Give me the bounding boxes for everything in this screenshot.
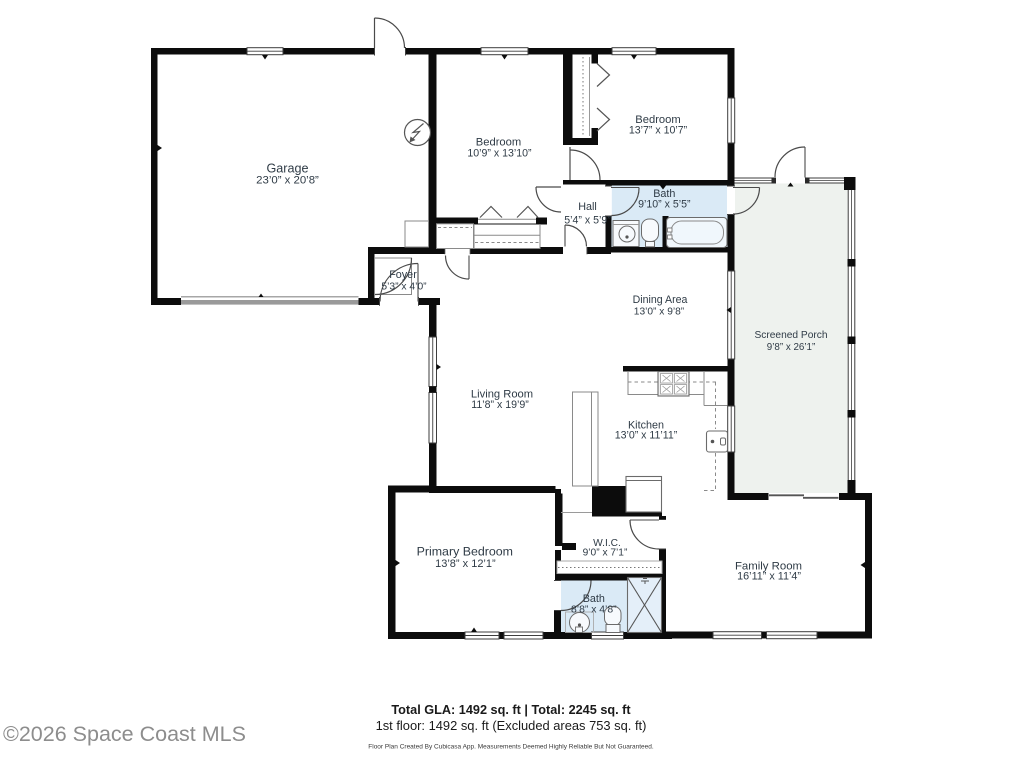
svg-text:5’4” x 5’9”: 5’4” x 5’9” (564, 214, 611, 226)
svg-text:Screened Porch: Screened Porch (754, 330, 827, 341)
svg-text:Floor Plan Created By Cubicasa: Floor Plan Created By Cubicasa App. Meas… (368, 744, 654, 751)
svg-text:13’7” x 10’7”: 13’7” x 10’7” (629, 125, 688, 137)
svg-text:16’11” x 11’4”: 16’11” x 11’4” (737, 571, 801, 583)
svg-text:Total GLA: 1492 sq. ft | Total: Total GLA: 1492 sq. ft | Total: 2245 sq.… (391, 703, 631, 717)
svg-text:Garage: Garage (266, 162, 308, 176)
svg-text:1st floor: 1492 sq. ft (Exclud: 1st floor: 1492 sq. ft (Excluded areas 7… (376, 718, 647, 733)
svg-text:Primary Bedroom: Primary Bedroom (417, 545, 513, 559)
svg-text:9’10” x 5’5”: 9’10” x 5’5” (638, 198, 691, 210)
svg-text:9’0” x 7’1”: 9’0” x 7’1” (583, 548, 628, 559)
svg-text:23’0” x 20’8”: 23’0” x 20’8” (256, 175, 319, 187)
svg-text:13’0” x 11’11”: 13’0” x 11’11” (615, 429, 678, 441)
svg-text:13’8” x 12’1”: 13’8” x 12’1” (435, 558, 496, 570)
svg-text:8’8” x 4’8”: 8’8” x 4’8” (571, 605, 617, 616)
svg-text:Foyer: Foyer (389, 269, 417, 281)
svg-text:5’3” x 4’0”: 5’3” x 4’0” (381, 282, 427, 293)
svg-text:10’9” x 13’10”: 10’9” x 13’10” (467, 147, 532, 159)
svg-text:Dining Area: Dining Area (633, 294, 688, 306)
svg-text:11’8” x 19’9”: 11’8” x 19’9” (471, 399, 529, 411)
svg-text:©2026 Space Coast MLS: ©2026 Space Coast MLS (3, 722, 246, 746)
svg-text:13’0” x 9’8”: 13’0” x 9’8” (634, 307, 685, 318)
svg-text:Bath: Bath (583, 593, 605, 605)
svg-text:9’8” x 26’1”: 9’8” x 26’1” (767, 342, 815, 353)
svg-text:Hall: Hall (578, 201, 597, 213)
